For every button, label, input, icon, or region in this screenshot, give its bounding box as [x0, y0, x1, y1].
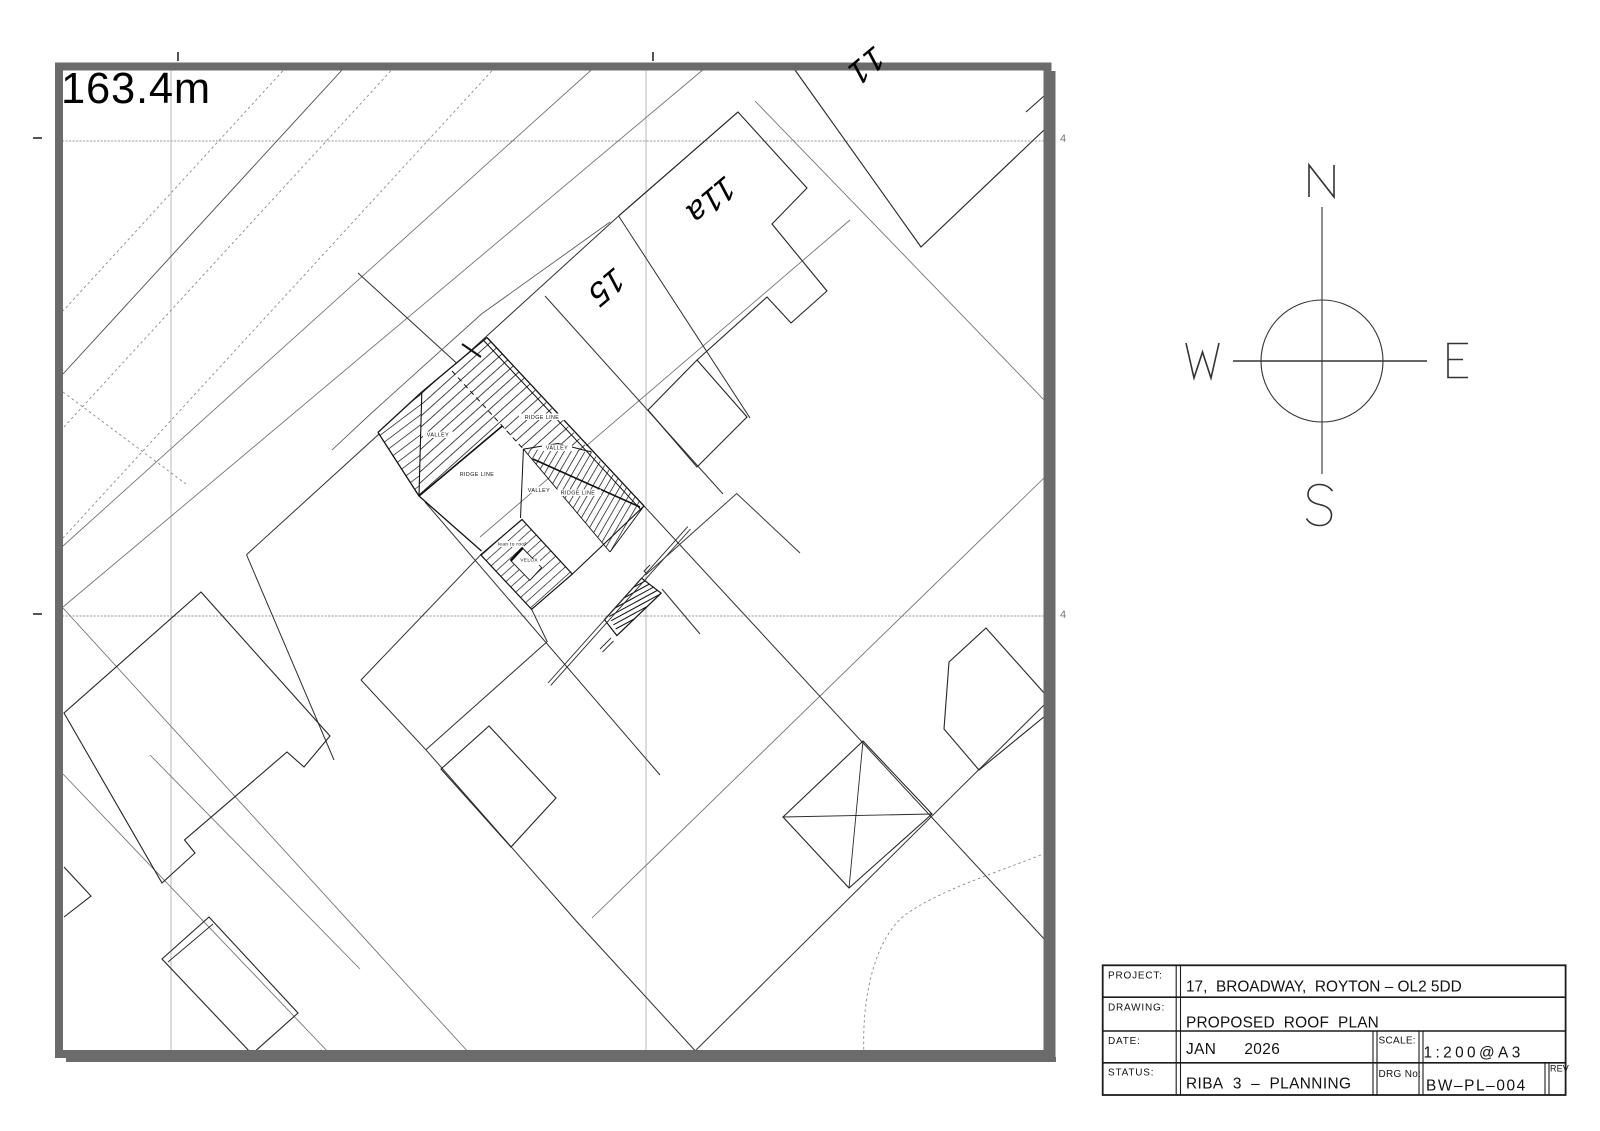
svg-text:RIDGE LINE: RIDGE LINE: [561, 491, 596, 497]
svg-text:JAN 2026: JAN 2026: [1186, 1041, 1280, 1058]
svg-text:RIBA 3 – PLANNING: RIBA 3 – PLANNING: [1186, 1076, 1351, 1093]
svg-text:VALLEY: VALLEY: [528, 488, 550, 494]
svg-text:VALLEY: VALLEY: [427, 433, 449, 439]
svg-text:1:200@A3: 1:200@A3: [1424, 1045, 1524, 1062]
svg-text:DRG No:: DRG No:: [1379, 1069, 1422, 1080]
svg-text:PROPOSED ROOF PLAN: PROPOSED ROOF PLAN: [1186, 1015, 1379, 1032]
svg-text:RIDGE LINE: RIDGE LINE: [460, 472, 495, 478]
svg-text:SCALE:: SCALE:: [1379, 1036, 1416, 1047]
svg-text:4: 4: [1060, 609, 1066, 621]
svg-text:RIDGE LINE: RIDGE LINE: [525, 415, 560, 421]
svg-text:DRAWING:: DRAWING:: [1108, 1003, 1165, 1014]
svg-text:VALLEY: VALLEY: [546, 446, 568, 452]
svg-text:PROJECT:: PROJECT:: [1108, 971, 1163, 982]
svg-text:VELUX: VELUX: [520, 558, 538, 564]
svg-text:17, BROADWAY, ROYTON – OL2 5: 17, BROADWAY, ROYTON – OL2 5DD: [1186, 979, 1462, 996]
svg-text:STATUS:: STATUS:: [1108, 1068, 1154, 1079]
svg-text:4: 4: [1060, 133, 1066, 145]
svg-text:DATE:: DATE:: [1108, 1036, 1141, 1047]
svg-text:BW–PL–004: BW–PL–004: [1426, 1078, 1527, 1095]
svg-text:REV: REV: [1550, 1064, 1569, 1074]
svg-text:163.4m: 163.4m: [61, 65, 211, 113]
svg-text:lean to roof: lean to roof: [498, 542, 526, 548]
